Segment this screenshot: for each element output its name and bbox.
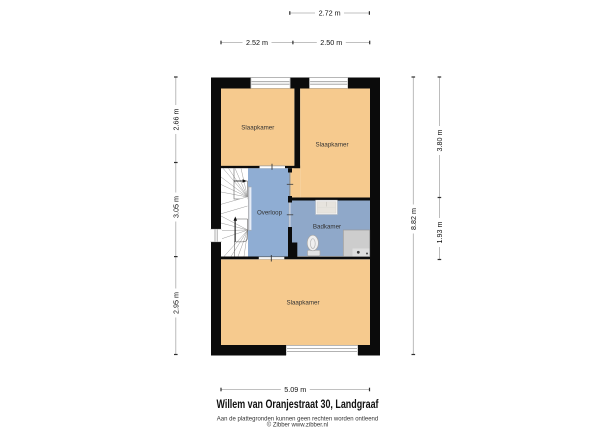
svg-text:Slaapkamer: Slaapkamer (241, 124, 274, 131)
svg-text:Badkamer: Badkamer (313, 223, 341, 230)
svg-text:8.82 m: 8.82 m (409, 208, 418, 230)
svg-text:Slaapkamer: Slaapkamer (286, 299, 319, 306)
svg-text:© Zibber www.zibber.nl: © Zibber www.zibber.nl (267, 421, 328, 428)
svg-text:5.09 m: 5.09 m (284, 385, 306, 394)
svg-text:2.66 m: 2.66 m (171, 109, 180, 131)
svg-text:Slaapkamer: Slaapkamer (315, 141, 348, 148)
svg-text:2.72 m: 2.72 m (319, 9, 341, 18)
svg-text:Overloop: Overloop (257, 209, 283, 216)
svg-text:1.93 m: 1.93 m (435, 222, 444, 244)
svg-text:2.50 m: 2.50 m (320, 38, 342, 47)
svg-text:2.95 m: 2.95 m (171, 292, 180, 314)
svg-text:3.80 m: 3.80 m (435, 130, 444, 152)
svg-text:2.52 m: 2.52 m (246, 38, 268, 47)
svg-text:Willem van Oranjestraat 30, La: Willem van Oranjestraat 30, Landgraaf (217, 397, 380, 411)
svg-text:3.05 m: 3.05 m (171, 196, 180, 218)
